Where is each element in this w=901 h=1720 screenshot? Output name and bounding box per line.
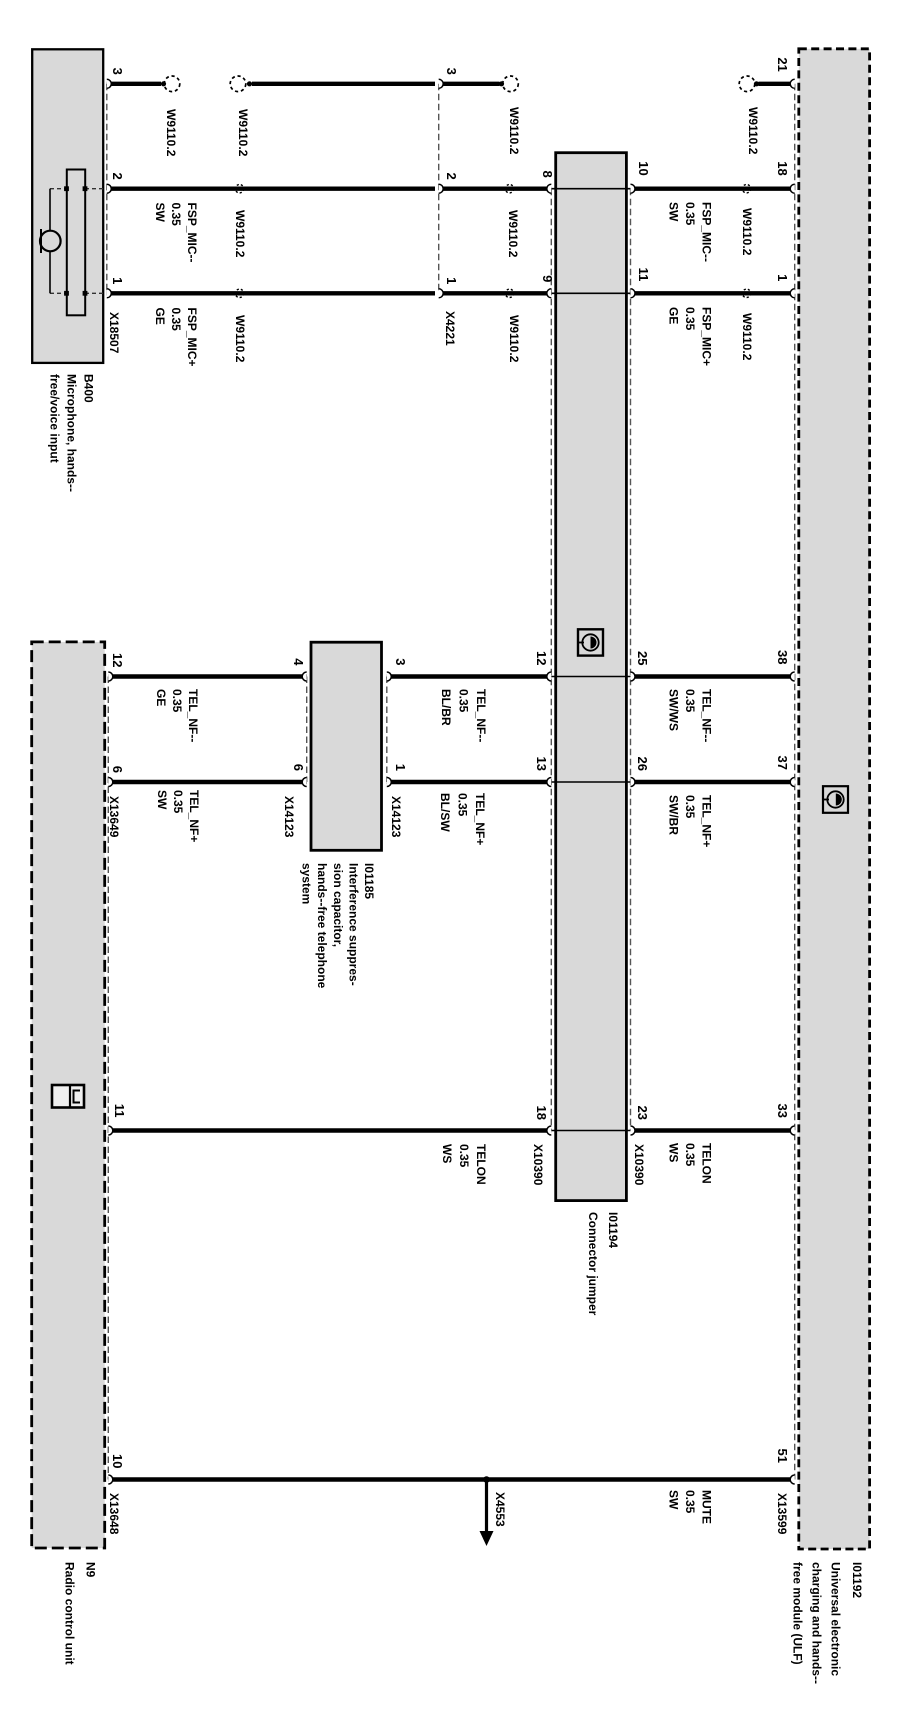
svg-text:1: 1 [444,277,459,284]
svg-text:X14123: X14123 [389,796,403,838]
svg-text:TELON: TELON [474,1144,488,1185]
svg-text:GE: GE [154,689,168,706]
svg-text:SW: SW [155,790,169,810]
svg-text:FSP_MIC+: FSP_MIC+ [700,307,714,366]
svg-text:9: 9 [540,275,555,282]
svg-text:6: 6 [291,764,306,771]
svg-text:BL/SW: BL/SW [438,793,452,832]
svg-text:X4553: X4553 [493,1492,507,1527]
svg-text:SW/WS: SW/WS [667,689,681,731]
svg-text:charging and hands--: charging and hands-- [810,1562,824,1684]
svg-text:B400: B400 [82,374,96,403]
svg-text:0.35: 0.35 [683,1143,697,1167]
svg-text:TEL_NF+: TEL_NF+ [187,790,201,842]
svg-text:FSP_MIC--: FSP_MIC-- [700,202,714,262]
svg-text:hands--free telephone: hands--free telephone [315,863,329,989]
svg-text:0.35: 0.35 [457,689,471,713]
svg-text:W9110.2: W9110.2 [236,109,250,157]
svg-text:1: 1 [393,764,408,771]
svg-text:Interference suppres-: Interference suppres- [346,863,360,986]
svg-text:SW: SW [667,202,681,222]
svg-text:X13599: X13599 [775,1493,789,1535]
svg-text:W9110.2: W9110.2 [233,210,247,258]
svg-text:BL/BR: BL/BR [439,689,453,726]
svg-text:W9110.2: W9110.2 [746,107,760,155]
svg-text:Microphone, hands--: Microphone, hands-- [65,374,79,492]
svg-text:0.35: 0.35 [683,307,697,331]
svg-text:W9110.2: W9110.2 [507,107,521,155]
svg-text:6: 6 [110,766,125,773]
svg-text:13: 13 [534,757,549,771]
svg-text:TEL_NF--: TEL_NF-- [186,689,200,742]
svg-text:12: 12 [110,653,125,667]
svg-text:X10390: X10390 [531,1144,545,1186]
svg-text:WS: WS [667,1143,681,1162]
svg-text:4: 4 [291,658,306,666]
svg-text:0.35: 0.35 [683,1490,697,1514]
svg-text:TEL_NF+: TEL_NF+ [473,793,487,845]
svg-text:W9110.2: W9110.2 [507,315,521,363]
svg-text:GE: GE [667,307,681,324]
svg-text:W9110.2: W9110.2 [233,315,247,363]
svg-text:SW: SW [667,1490,681,1510]
svg-text:Radio control unit: Radio control unit [63,1562,77,1665]
svg-text:N9: N9 [84,1562,98,1578]
svg-text:3: 3 [110,68,125,75]
svg-text:3: 3 [393,658,408,665]
svg-text:TELON: TELON [700,1143,714,1184]
svg-text:MUTE: MUTE [700,1490,714,1524]
svg-text:37: 37 [775,756,790,770]
svg-text:system: system [300,863,314,904]
svg-text:FSP_MIC+: FSP_MIC+ [185,308,199,367]
svg-text:10: 10 [636,161,651,175]
svg-text:W9110.2: W9110.2 [506,210,520,258]
svg-text:X18507: X18507 [107,312,121,354]
svg-text:free/voice input: free/voice input [48,374,62,463]
svg-text:11: 11 [636,268,651,282]
svg-text:0.35: 0.35 [683,795,697,819]
svg-text:TEL_NF--: TEL_NF-- [700,689,714,742]
svg-text:38: 38 [775,650,790,664]
svg-text:X14123: X14123 [282,796,296,838]
svg-text:Universal electronic: Universal electronic [829,1562,843,1676]
svg-text:X4221: X4221 [443,311,457,346]
svg-text:18: 18 [775,161,790,175]
svg-text:33: 33 [775,1104,790,1118]
svg-text:0.35: 0.35 [171,790,185,814]
svg-text:WS: WS [440,1144,454,1163]
svg-text:11: 11 [112,1104,127,1118]
svg-text:X10390: X10390 [632,1144,646,1186]
svg-text:0.35: 0.35 [683,202,697,226]
svg-text:free module (ULF): free module (ULF) [791,1562,805,1665]
svg-text:0.35: 0.35 [169,308,183,332]
svg-text:0.35: 0.35 [457,1144,471,1168]
svg-text:10: 10 [110,1454,125,1468]
svg-text:SW/BR: SW/BR [667,795,681,835]
svg-text:Connector jumper: Connector jumper [586,1212,600,1316]
svg-text:0.35: 0.35 [169,203,183,227]
svg-text:I01185: I01185 [362,863,376,899]
svg-text:FSP_MIC--: FSP_MIC-- [185,203,199,263]
svg-text:X13649: X13649 [107,796,121,838]
svg-text:1: 1 [110,277,125,284]
svg-text:2: 2 [110,172,125,179]
svg-text:0.35: 0.35 [170,689,184,713]
svg-text:sion capacitor,: sion capacitor, [331,863,345,947]
svg-text:W9110.2: W9110.2 [740,208,754,256]
svg-text:12: 12 [534,651,549,665]
svg-text:TEL_NF+: TEL_NF+ [700,795,714,847]
svg-text:W9110.2: W9110.2 [164,109,178,157]
svg-text:I01194: I01194 [606,1212,620,1248]
svg-text:18: 18 [534,1106,549,1120]
svg-text:W9110.2: W9110.2 [740,313,754,361]
svg-text:TEL_NF--: TEL_NF-- [474,689,488,742]
svg-text:26: 26 [635,757,650,771]
svg-text:1: 1 [775,274,790,281]
svg-text:SW: SW [153,203,167,223]
svg-text:51: 51 [775,1449,790,1463]
svg-text:23: 23 [635,1106,650,1120]
svg-text:GE: GE [153,308,167,325]
svg-text:0.35: 0.35 [683,689,697,713]
svg-text:0.35: 0.35 [456,793,470,817]
svg-text:2: 2 [444,172,459,179]
svg-text:X13648: X13648 [107,1493,121,1535]
svg-text:8: 8 [540,170,555,177]
svg-text:25: 25 [635,651,650,665]
svg-text:21: 21 [775,57,790,71]
svg-text:I01192: I01192 [850,1562,864,1598]
svg-text:3: 3 [444,68,459,75]
